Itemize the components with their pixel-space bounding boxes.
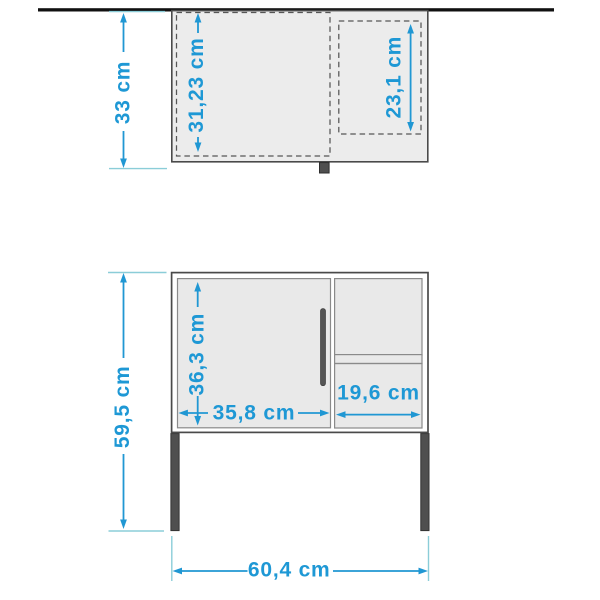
svg-text:31,23 cm: 31,23 cm: [185, 37, 208, 132]
svg-text:23,1 cm: 23,1 cm: [383, 36, 406, 119]
svg-text:19,6 cm: 19,6 cm: [337, 381, 420, 404]
svg-text:59,5 cm: 59,5 cm: [111, 366, 134, 449]
svg-text:35,8 cm: 35,8 cm: [213, 402, 296, 425]
svg-text:33 cm: 33 cm: [112, 61, 135, 125]
svg-text:60,4 cm: 60,4 cm: [248, 559, 331, 582]
svg-text:36,3 cm: 36,3 cm: [186, 313, 209, 396]
